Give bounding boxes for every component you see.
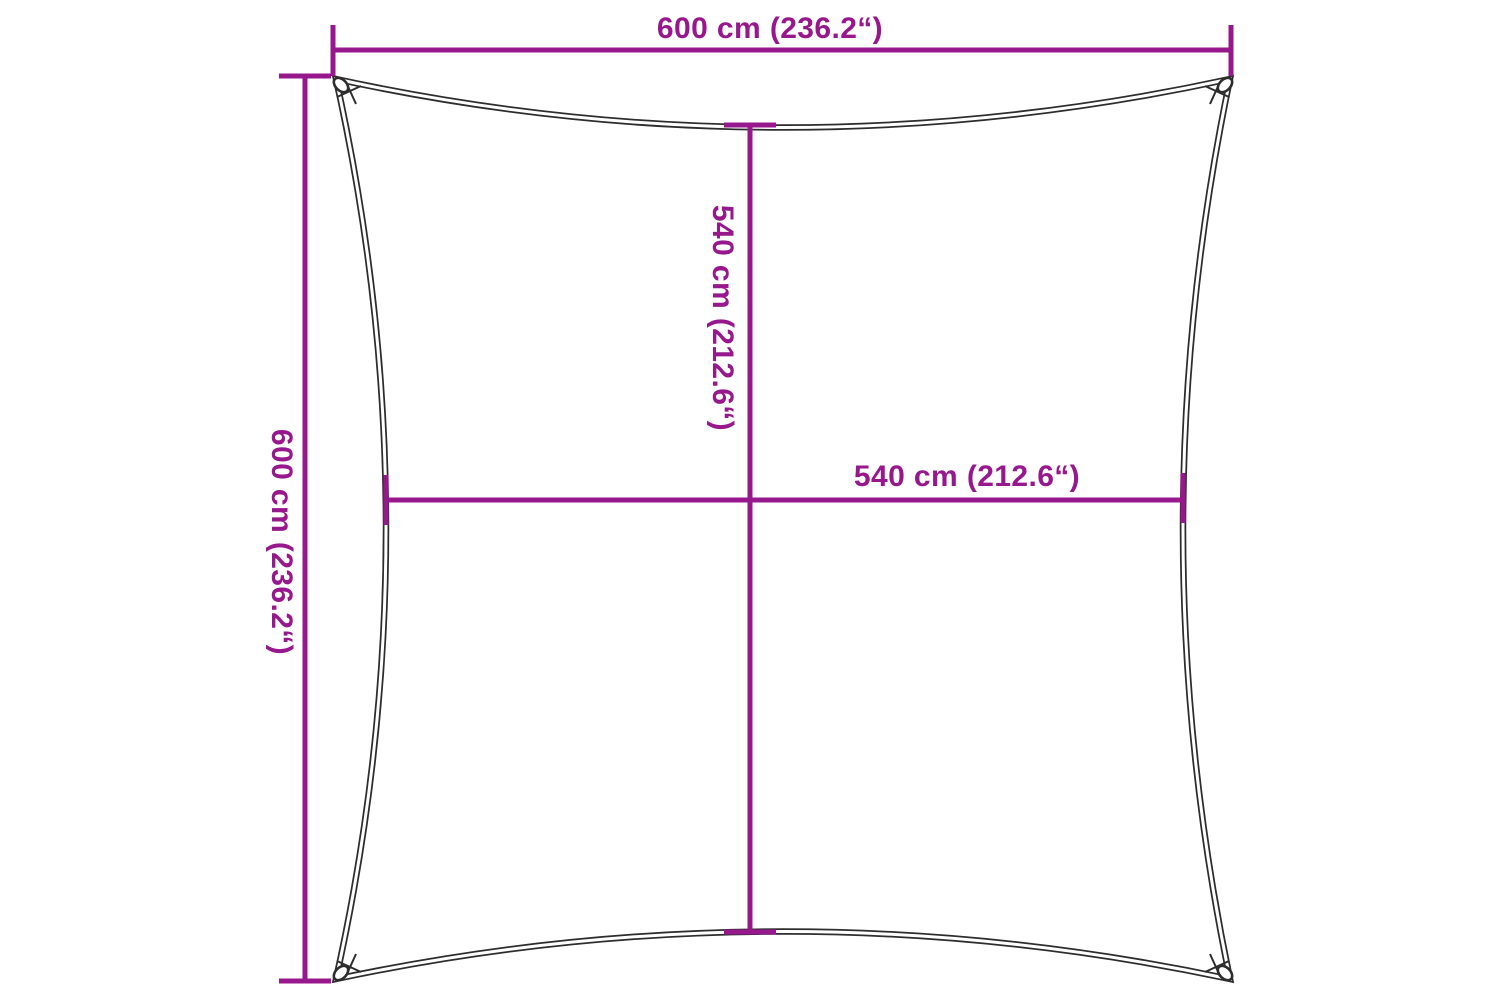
dimension-label-top-width: 600 cm (236.2“) [657,12,883,46]
dimension-diagram: 600 cm (236.2“) 600 cm (236.2“) 540 cm (… [0,0,1500,1000]
dimension-label-left-height: 600 cm (236.2“) [264,429,298,655]
dimension-label-center-height: 540 cm (212.6“) [705,205,739,431]
dimension-label-center-width: 540 cm (212.6“) [854,460,1080,494]
sail-corner-rings [331,75,1235,983]
sail-outline [336,79,1230,979]
diagram-canvas [0,0,1500,1000]
